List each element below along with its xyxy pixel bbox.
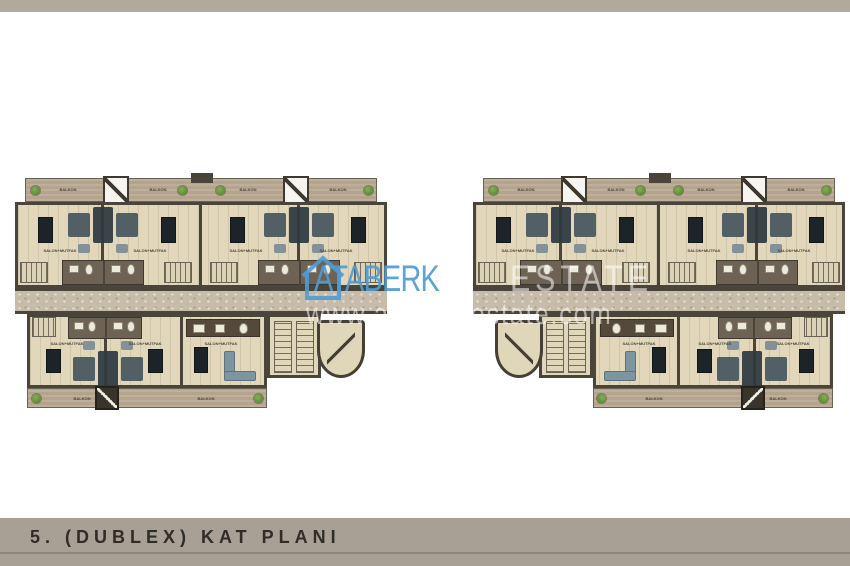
stairs — [20, 262, 48, 283]
plant-icon — [819, 394, 828, 403]
lower-units-block: SALON+MUTFAK SALON+MUTFAK SALON+MUTFAK — [593, 314, 833, 388]
toilet-icon — [781, 264, 789, 275]
stairs — [32, 317, 56, 337]
kitchen-counter — [186, 319, 260, 337]
plant-icon — [597, 394, 606, 403]
corridor — [15, 288, 387, 314]
plant-icon — [254, 394, 263, 403]
floor-plan-right: BALKON BALKON BALKON BALKON SALON+MUTFAK… — [473, 178, 845, 410]
dining-table — [619, 217, 634, 243]
plant-icon — [674, 186, 683, 195]
unit-wall — [677, 317, 680, 385]
plant-icon — [31, 186, 40, 195]
bath-wall — [561, 261, 563, 286]
stair-flight — [546, 321, 564, 373]
stair-flight — [274, 321, 292, 373]
plan-lower-wing: SALON+MUTFAK SALON+MUTFAK SALON+MUTFAK B… — [15, 314, 387, 410]
plan-lower-wing: SALON+MUTFAK SALON+MUTFAK SALON+MUTFAK B… — [473, 314, 845, 410]
caption-bar: 5. (DUBLEX) KAT PLANI — [0, 518, 850, 566]
plan-upper-wing: BALKON BALKON BALKON BALKON SALON+MUTFAK… — [15, 178, 387, 288]
dining-table — [652, 347, 666, 373]
unit-wall — [657, 205, 660, 285]
balcony-door-icon — [741, 386, 765, 410]
stair-flight — [296, 321, 314, 373]
fridge-icon — [612, 323, 621, 334]
unit-wall — [199, 205, 202, 285]
floor-plan-caption: 5. (DUBLEX) KAT PLANI — [30, 527, 341, 548]
plant-icon — [178, 186, 187, 195]
sink-icon — [527, 265, 537, 273]
toilet-icon — [281, 264, 289, 275]
dining-table — [194, 347, 208, 373]
bathroom — [520, 260, 602, 285]
room-label: SALON+MUTFAK — [307, 248, 365, 253]
room-label: SALON+MUTFAK — [765, 248, 823, 253]
upper-units-block: SALON+MUTFAK SALON+MUTFAK SALON+MUTFAK S… — [473, 202, 845, 288]
sink-icon — [635, 324, 645, 333]
sink-icon — [569, 265, 579, 273]
caption-divider — [0, 552, 850, 554]
balcony-label: BALKON — [776, 187, 816, 192]
dining-table — [161, 217, 176, 243]
toilet-icon — [543, 264, 551, 275]
stairs — [210, 262, 238, 283]
room-label: SALON+MUTFAK — [116, 341, 174, 346]
plant-icon — [822, 186, 831, 195]
unit-wall — [180, 317, 183, 385]
stairwell — [539, 314, 593, 378]
lower-units-block: SALON+MUTFAK SALON+MUTFAK SALON+MUTFAK — [27, 314, 267, 388]
sink-icon — [307, 265, 317, 273]
room-label: SALON+MUTFAK — [121, 248, 179, 253]
corner-sofa — [602, 351, 636, 381]
stair-flight — [568, 321, 586, 373]
balcony-label: BALKON — [506, 187, 546, 192]
bathroom — [258, 260, 340, 285]
balcony-bottom: BALKON BALKON — [27, 388, 267, 408]
wall-stub — [191, 173, 213, 183]
sofa-group — [717, 343, 787, 387]
bath-wall — [757, 261, 759, 286]
bathroom — [68, 317, 142, 339]
sink-icon — [776, 322, 786, 330]
plant-icon — [636, 186, 645, 195]
upper-units-block: SALON+MUTFAK SALON+MUTFAK SALON+MUTFAK S… — [15, 202, 387, 288]
balcony-label: BALKON — [634, 396, 674, 401]
turret-balcony — [495, 320, 543, 378]
toilet-icon — [127, 321, 135, 332]
plant-icon — [364, 186, 373, 195]
toilet-icon — [725, 321, 733, 332]
dining-table — [46, 349, 61, 373]
balcony-label: BALKON — [596, 187, 636, 192]
stairs — [478, 262, 506, 283]
sofa-group — [73, 343, 143, 387]
room-label: SALON+MUTFAK — [38, 341, 96, 346]
stairs — [354, 262, 382, 283]
sofa-group — [68, 207, 138, 253]
dining-table — [697, 349, 712, 373]
dining-table — [148, 349, 163, 373]
sink-icon — [113, 322, 123, 330]
plant-icon — [216, 186, 225, 195]
room-label: SALON+MUTFAK — [217, 248, 275, 253]
room-label: SALON+MUTFAK — [489, 248, 547, 253]
bath-wall — [105, 318, 107, 340]
stairs — [812, 262, 840, 283]
wall-stub — [649, 173, 671, 183]
turret-balcony — [317, 320, 365, 378]
balcony-door-icon — [741, 176, 767, 204]
balcony-bottom: BALKON BALKON — [593, 388, 833, 408]
kitchen-counter — [600, 319, 674, 337]
dining-table — [496, 217, 511, 243]
bath-wall — [103, 261, 105, 286]
balcony-label: BALKON — [48, 187, 88, 192]
dining-table — [688, 217, 703, 243]
toilet-icon — [88, 321, 96, 332]
room-label: SALON+MUTFAK — [610, 341, 668, 346]
stairs — [164, 262, 192, 283]
balcony-label: BALKON — [686, 187, 726, 192]
balcony-label: BALKON — [138, 187, 178, 192]
toilet-icon — [127, 264, 135, 275]
plant-icon — [489, 186, 498, 195]
room-label: SALON+MUTFAK — [675, 248, 733, 253]
bathroom — [62, 260, 144, 285]
balcony-door-icon — [95, 386, 119, 410]
dining-table — [799, 349, 814, 373]
stairs — [804, 317, 828, 337]
dining-table — [230, 217, 245, 243]
balcony-door-icon — [283, 176, 309, 204]
bathroom — [716, 260, 798, 285]
dining-table — [809, 217, 824, 243]
plant-icon — [32, 394, 41, 403]
sink-icon — [111, 265, 121, 273]
dining-table — [351, 217, 366, 243]
sofa-group — [526, 207, 596, 253]
sink-icon — [265, 265, 275, 273]
toilet-icon — [739, 264, 747, 275]
dining-table — [38, 217, 53, 243]
top-strip — [0, 0, 850, 12]
sink-icon — [723, 265, 733, 273]
floor-plan-left: BALKON BALKON BALKON BALKON SALON+MUTFAK… — [15, 178, 387, 410]
page-canvas: BALKON BALKON BALKON BALKON SALON+MUTFAK… — [0, 0, 850, 566]
room-label: SALON+MUTFAK — [31, 248, 89, 253]
balcony-door-icon — [561, 176, 587, 204]
sink-icon — [737, 322, 747, 330]
balcony-label: BALKON — [228, 187, 268, 192]
room-label: SALON+MUTFAK — [686, 341, 744, 346]
fridge-icon — [239, 323, 248, 334]
toilet-icon — [85, 264, 93, 275]
toilet-icon — [764, 321, 772, 332]
sofa-group — [722, 207, 792, 253]
sink-icon — [74, 322, 84, 330]
room-label: SALON+MUTFAK — [764, 341, 822, 346]
sofa-group — [264, 207, 334, 253]
corner-sofa — [224, 351, 258, 381]
balcony-label: BALKON — [318, 187, 358, 192]
plan-upper-wing: BALKON BALKON BALKON BALKON SALON+MUTFAK… — [473, 178, 845, 288]
room-label: SALON+MUTFAK — [579, 248, 637, 253]
stove-icon — [655, 324, 667, 333]
bathroom — [718, 317, 792, 339]
toilet-icon — [323, 264, 331, 275]
stairs — [668, 262, 696, 283]
balcony-label: BALKON — [186, 396, 226, 401]
sink-icon — [765, 265, 775, 273]
corridor — [473, 288, 845, 314]
bath-wall — [299, 261, 301, 286]
sink-icon — [69, 265, 79, 273]
stairwell — [267, 314, 321, 378]
sink-icon — [215, 324, 225, 333]
room-label: SALON+MUTFAK — [192, 341, 250, 346]
stove-icon — [193, 324, 205, 333]
balcony-door-icon — [103, 176, 129, 204]
bath-wall — [753, 318, 755, 340]
stairs — [622, 262, 650, 283]
toilet-icon — [585, 264, 593, 275]
